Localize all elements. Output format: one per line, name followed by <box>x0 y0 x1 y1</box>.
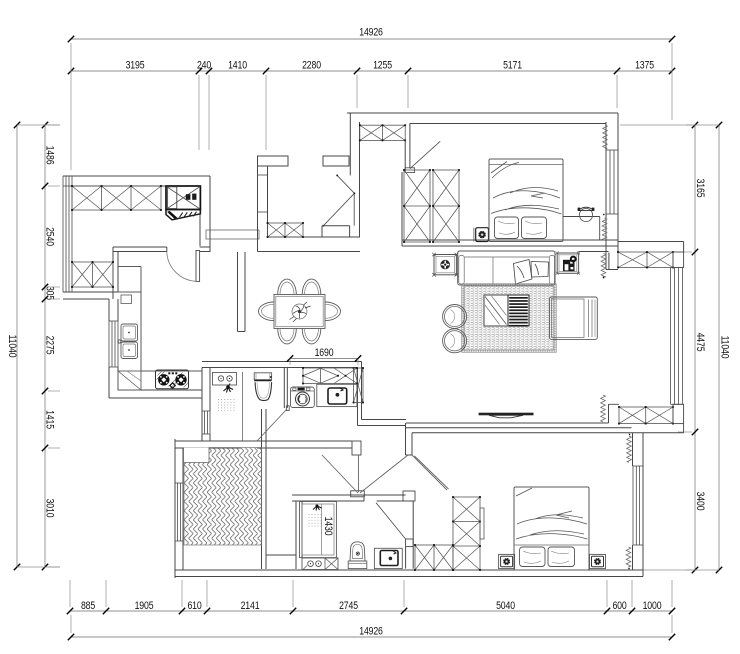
svg-text:1486: 1486 <box>43 146 55 165</box>
svg-text:5171: 5171 <box>503 60 522 72</box>
svg-text:2745: 2745 <box>339 600 358 612</box>
svg-text:11040: 11040 <box>6 335 18 358</box>
svg-text:610: 610 <box>187 600 202 612</box>
svg-text:11040: 11040 <box>718 336 730 359</box>
svg-text:1000: 1000 <box>643 600 662 612</box>
svg-text:14926: 14926 <box>359 27 383 39</box>
svg-text:2275: 2275 <box>43 336 55 355</box>
svg-text:3010: 3010 <box>43 499 55 518</box>
svg-text:3195: 3195 <box>126 60 145 72</box>
svg-text:1410: 1410 <box>228 60 247 72</box>
svg-text:1905: 1905 <box>135 600 154 612</box>
svg-text:885: 885 <box>81 600 96 612</box>
svg-text:1430: 1430 <box>321 517 333 536</box>
svg-text:1255: 1255 <box>373 60 392 72</box>
svg-text:1415: 1415 <box>43 410 55 429</box>
svg-text:14926: 14926 <box>359 626 383 638</box>
svg-text:1690: 1690 <box>315 347 334 359</box>
svg-text:2141: 2141 <box>241 600 260 612</box>
svg-text:2280: 2280 <box>302 60 321 72</box>
svg-text:5040: 5040 <box>496 600 515 612</box>
svg-text:240: 240 <box>197 60 212 72</box>
svg-text:4475: 4475 <box>694 333 706 352</box>
svg-text:2540: 2540 <box>43 227 55 246</box>
svg-text:305: 305 <box>43 286 55 301</box>
svg-text:3165: 3165 <box>694 179 706 198</box>
svg-text:3400: 3400 <box>694 492 706 511</box>
svg-text:600: 600 <box>612 600 627 612</box>
svg-text:1375: 1375 <box>635 60 654 72</box>
